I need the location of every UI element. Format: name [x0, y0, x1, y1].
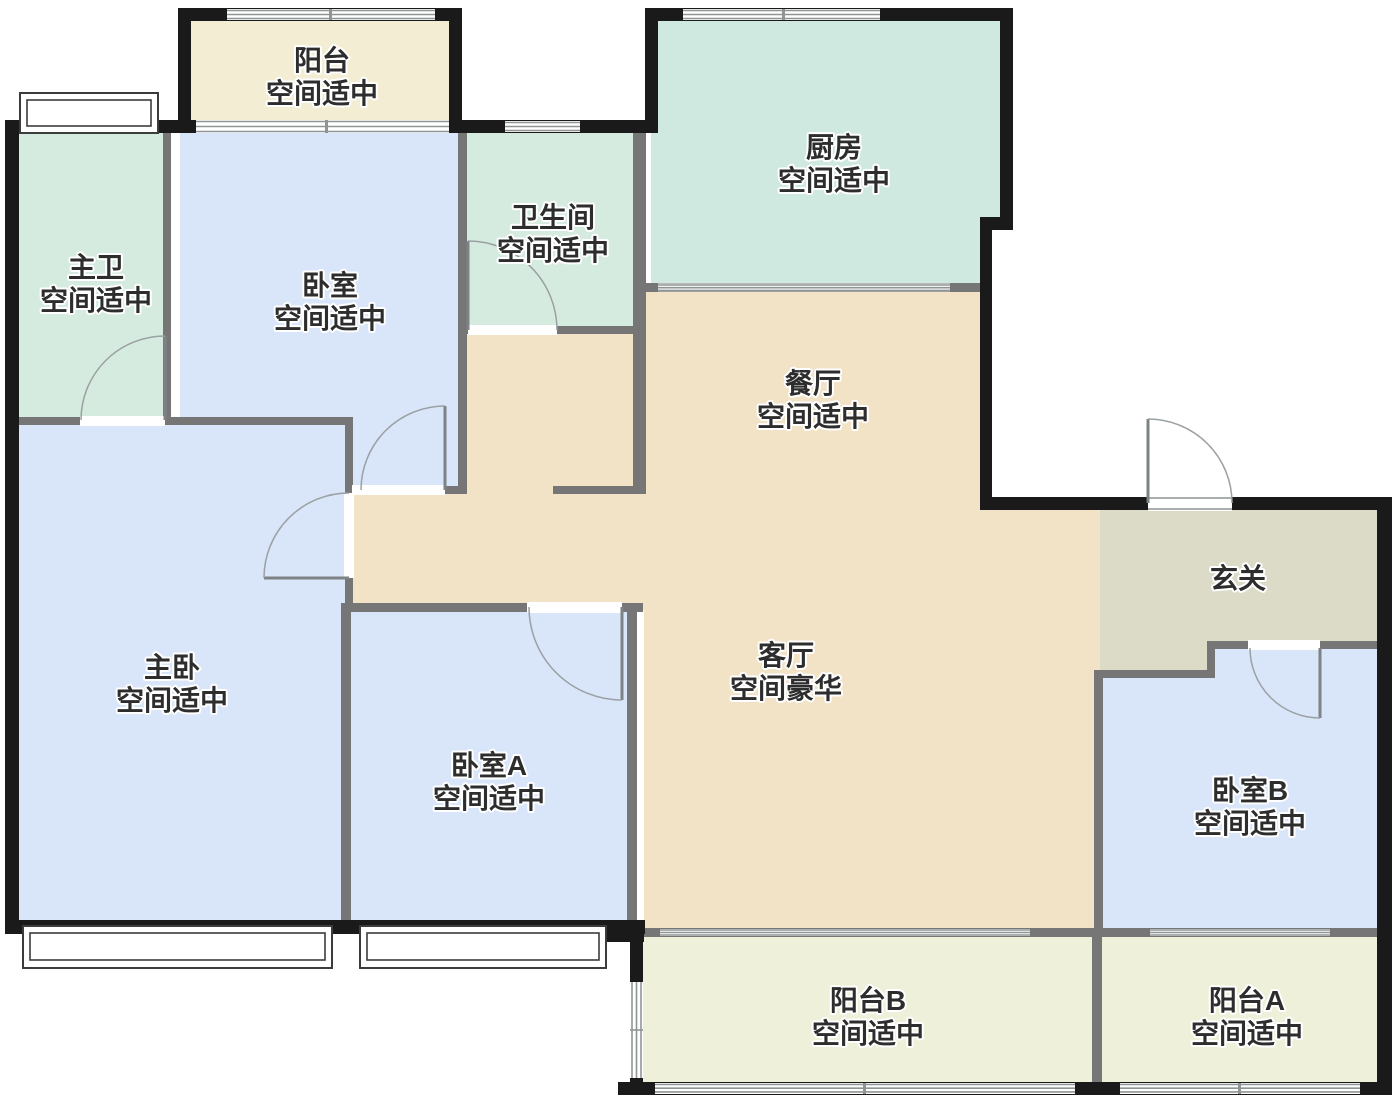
wall-ext-kitchen-right [1000, 8, 1013, 230]
wall-ext-right-mid [980, 222, 992, 510]
label-master-bedroom-status: 空间适中 [116, 684, 228, 716]
wall-ext-balcony-left [178, 8, 191, 133]
wall-bathroom-right [633, 127, 646, 494]
wall-ext-left [5, 120, 19, 934]
door-opening-masterbedroom [344, 493, 354, 578]
window-bay-masterbath [20, 93, 158, 133]
label-bedroom-name: 卧室 [302, 269, 358, 301]
label-bedroom-a-status: 空间适中 [433, 782, 545, 814]
door-opening-bedroom-b [1248, 640, 1320, 650]
label-kitchen-status: 空间适中 [778, 164, 890, 196]
wall-bedroom-a-right [627, 603, 637, 928]
label-foyer-name: 玄关 [1210, 562, 1266, 594]
door-opening-masterbath [80, 416, 165, 426]
wall-bedroom-a-left [341, 603, 351, 928]
label-bathroom-status: 空间适中 [497, 234, 609, 266]
wall-masterbedroom-right-upper [345, 417, 353, 493]
label-balcony-b-name: 阳台B [830, 984, 906, 1016]
wall-ext-balcony-right [449, 8, 462, 133]
wall-bedroom-right [458, 127, 467, 494]
room-hallway-lower [348, 490, 463, 610]
label-balcony-a-name: 阳台A [1209, 984, 1285, 1016]
room-living-east [986, 504, 1100, 932]
label-bedroom-status: 空间适中 [274, 302, 386, 334]
door-opening-bathroom [468, 325, 557, 335]
wall-ext-right [1377, 497, 1392, 1095]
label-balcony-top-name: 阳台 [294, 44, 350, 76]
label-dining-status: 空间适中 [757, 400, 869, 432]
label-dining-name: 餐厅 [785, 368, 841, 399]
wall-foyer-bottom-left [1094, 670, 1215, 678]
room-hallway-upper [463, 332, 644, 610]
label-master-bath-name: 主卫 [68, 252, 124, 283]
wall-masterbedroom-top [12, 417, 351, 425]
door-arc-entry [1148, 419, 1232, 503]
wall-balcony-divider [1092, 928, 1102, 1088]
label-bedroom-b-name: 卧室B [1212, 774, 1288, 806]
floorplan-canvas: 阳台 空间适中 主卫 空间适中 卧室 空间适中 卫生间 空间适中 厨房 空间适中… [0, 0, 1400, 1098]
label-bedroom-b-status: 空间适中 [1194, 807, 1306, 839]
label-balcony-a-status: 空间适中 [1191, 1017, 1303, 1049]
wall-ext-kitchen-left [645, 8, 658, 133]
door-opening-bedroom-a [527, 602, 622, 613]
label-master-bath-status: 空间适中 [40, 284, 152, 316]
label-balcony-b-status: 空间适中 [812, 1017, 924, 1049]
wall-living-topleft-stub [553, 486, 646, 494]
label-living-name: 客厅 [758, 639, 814, 671]
label-bathroom-name: 卫生间 [511, 202, 595, 233]
label-balcony-top-status: 空间适中 [266, 77, 378, 109]
label-living-status: 空间豪华 [730, 672, 842, 704]
label-kitchen-name: 厨房 [806, 131, 862, 163]
floorplan-page: 阳台 空间适中 主卫 空间适中 卧室 空间适中 卫生间 空间适中 厨房 空间适中… [0, 0, 1400, 1098]
label-master-bedroom-name: 主卧 [144, 652, 200, 683]
wall-bedroom-b-left [1094, 677, 1103, 932]
label-bedroom-a-name: 卧室A [451, 749, 527, 781]
door-opening-bedroom [352, 485, 445, 495]
